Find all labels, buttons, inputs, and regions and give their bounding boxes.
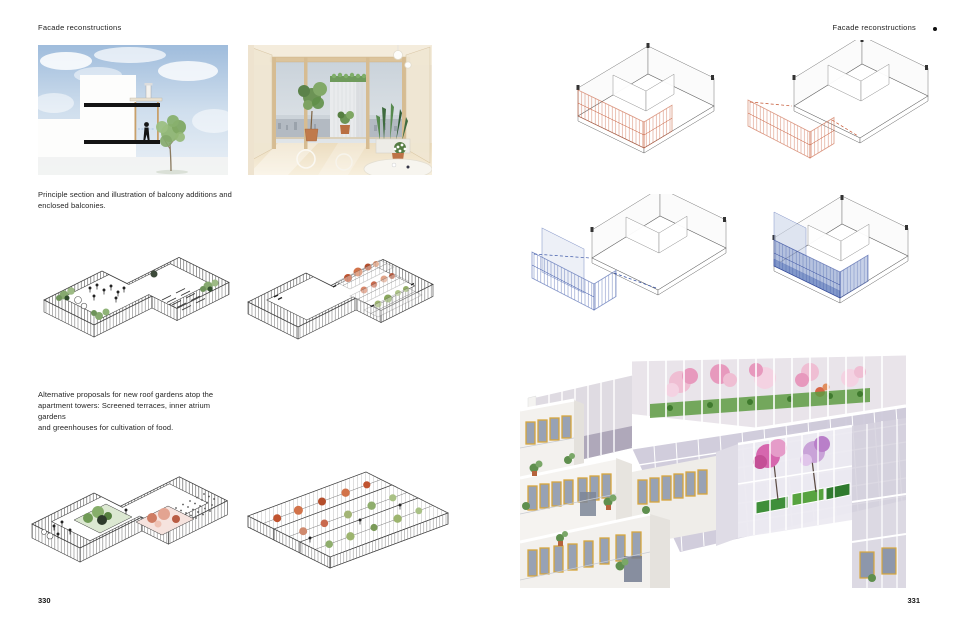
caption-line: apartment towers: Screened terraces, inn…: [38, 400, 238, 422]
book-spread: Facade reconstructions Facade reconstruc…: [0, 0, 960, 637]
greenhouse-rows-axon: [238, 446, 452, 584]
atrium-garden-axon: [28, 446, 230, 586]
section-marker-dot: [933, 27, 937, 31]
unit-axon-blue-attached: [744, 194, 940, 324]
left-page-number: 330: [38, 596, 51, 605]
balcony-interior-photo: [248, 45, 432, 175]
roof-gardens-caption: Alternative proposals for new roof garde…: [38, 389, 238, 433]
right-page-header: Facade reconstructions: [833, 23, 916, 32]
unit-axon-red-exploded: [742, 40, 938, 172]
balcony-caption: Principle section and illustration of ba…: [38, 189, 238, 211]
caption-line: Alternative proposals for new roof garde…: [38, 389, 238, 400]
roof-greenhouse-axon: [238, 236, 450, 358]
caption-line: enclosed balconies.: [38, 200, 238, 211]
right-page-number: 331: [907, 596, 920, 605]
left-page-header: Facade reconstructions: [38, 23, 121, 32]
caption-line: and greenhouses for cultivation of food.: [38, 422, 238, 433]
rooftop-greenhouse-render: [520, 352, 906, 588]
unit-axon-blue-exploded: [526, 194, 738, 322]
balcony-section-figure: [38, 45, 228, 175]
unit-axon-red-attached: [560, 42, 725, 170]
caption-line: Principle section and illustration of ba…: [38, 189, 238, 200]
roof-terrace-axon: [32, 240, 232, 355]
